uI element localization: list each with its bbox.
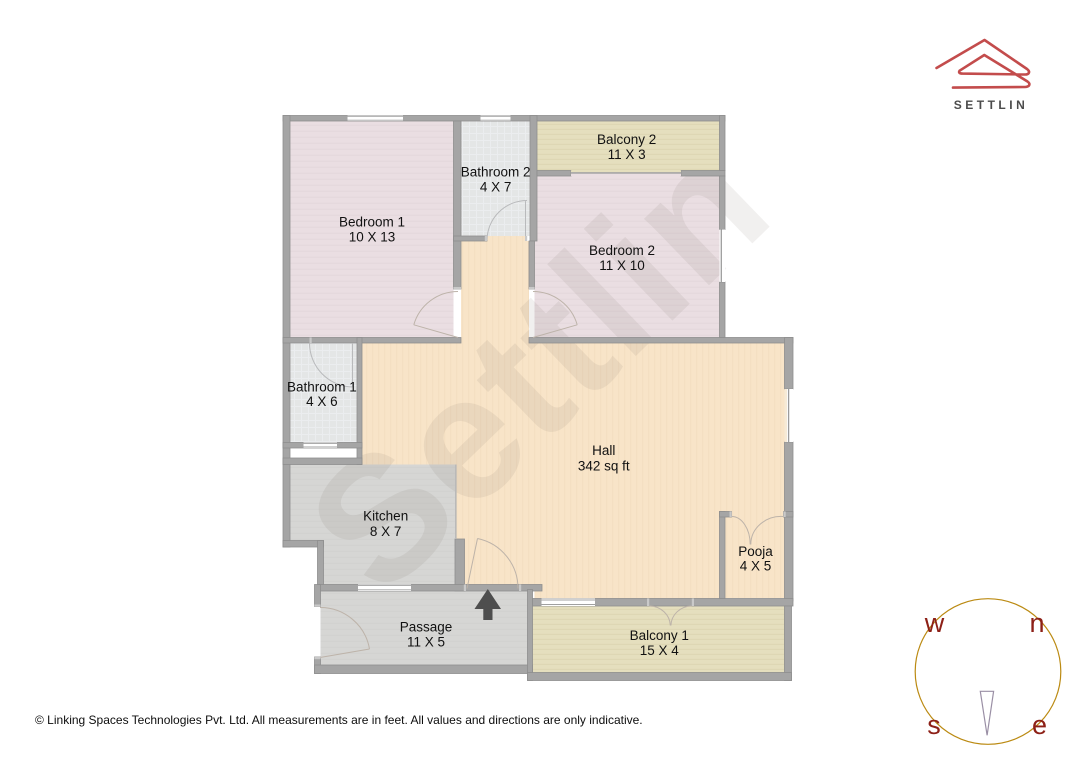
svg-text:Bedroom 1: Bedroom 1 [339, 215, 405, 230]
svg-text:© Linking Spaces Technologies: © Linking Spaces Technologies Pvt. Ltd. … [35, 713, 643, 727]
svg-text:s: s [927, 710, 941, 740]
svg-text:Balcony 2: Balcony 2 [597, 132, 656, 147]
svg-text:11 X 10: 11 X 10 [599, 258, 645, 273]
svg-text:4 X 7: 4 X 7 [480, 180, 512, 195]
svg-text:e: e [1032, 710, 1047, 740]
svg-text:Bathroom 1: Bathroom 1 [287, 380, 357, 395]
svg-text:Kitchen: Kitchen [363, 509, 408, 524]
svg-text:Pooja: Pooja [738, 544, 773, 559]
svg-text:15 X 4: 15 X 4 [640, 643, 680, 658]
svg-text:11 X 3: 11 X 3 [608, 147, 646, 162]
svg-text:Balcony 1: Balcony 1 [630, 628, 689, 643]
svg-text:Passage: Passage [400, 620, 453, 635]
svg-text:4 X 5: 4 X 5 [740, 559, 772, 574]
svg-text:Hall: Hall [592, 443, 615, 458]
svg-text:11 X 5: 11 X 5 [407, 635, 445, 650]
svg-text:Bathroom 2: Bathroom 2 [461, 165, 531, 180]
svg-text:8 X 7: 8 X 7 [370, 524, 402, 539]
svg-text:n: n [1029, 608, 1044, 638]
svg-text:4 X 6: 4 X 6 [306, 394, 338, 409]
svg-text:w: w [924, 608, 945, 638]
svg-text:Bedroom 2: Bedroom 2 [589, 243, 655, 258]
svg-text:10 X 13: 10 X 13 [349, 230, 396, 245]
svg-text:SETTLIN: SETTLIN [954, 98, 1029, 112]
svg-text:342 sq ft: 342 sq ft [578, 459, 630, 474]
